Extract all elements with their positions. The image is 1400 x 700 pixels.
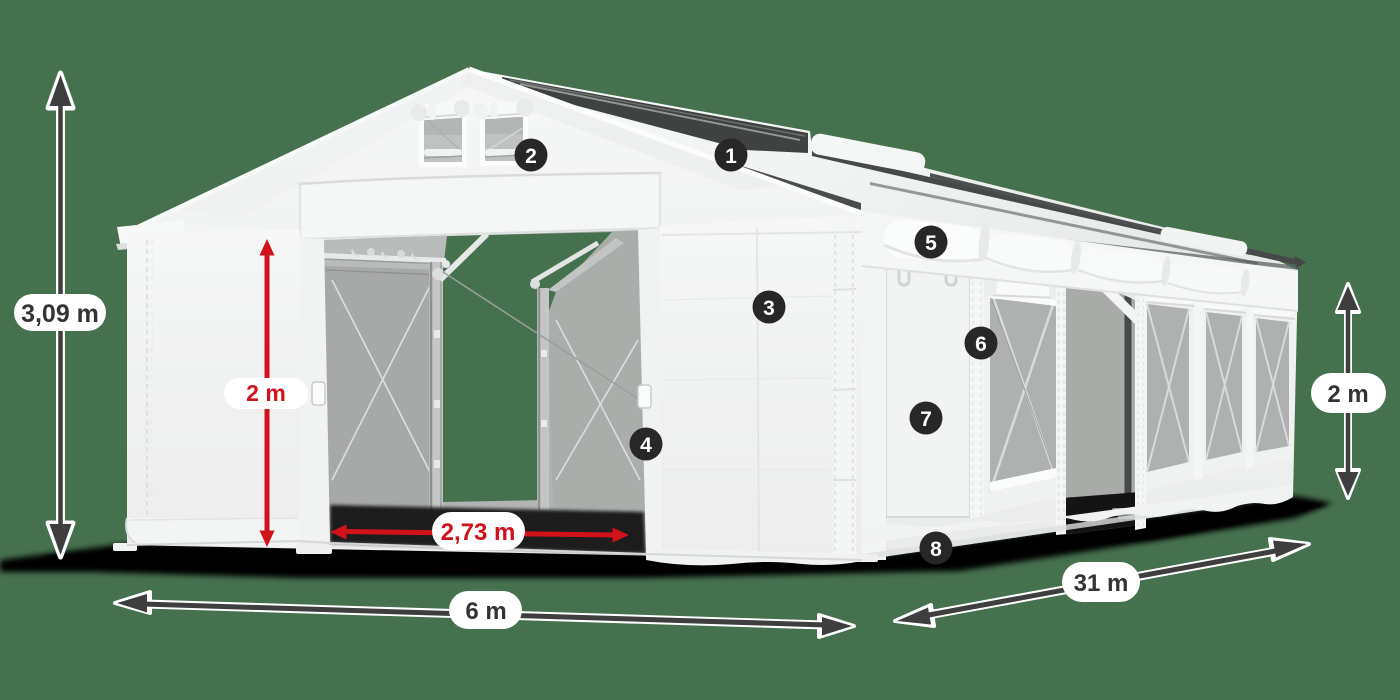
svg-text:2: 2	[525, 145, 537, 168]
svg-text:7: 7	[920, 408, 932, 431]
svg-text:3: 3	[763, 297, 775, 320]
svg-text:1: 1	[725, 145, 737, 168]
svg-text:2,73 m: 2,73 m	[441, 519, 516, 546]
svg-text:8: 8	[930, 538, 942, 561]
svg-text:6 m: 6 m	[465, 598, 506, 625]
svg-text:4: 4	[640, 434, 652, 457]
svg-text:31 m: 31 m	[1074, 570, 1129, 597]
svg-text:2 m: 2 m	[1327, 381, 1368, 408]
svg-text:3,09 m: 3,09 m	[21, 300, 99, 328]
svg-text:2 m: 2 m	[246, 380, 286, 406]
svg-text:5: 5	[925, 232, 937, 255]
svg-text:6: 6	[975, 333, 987, 356]
